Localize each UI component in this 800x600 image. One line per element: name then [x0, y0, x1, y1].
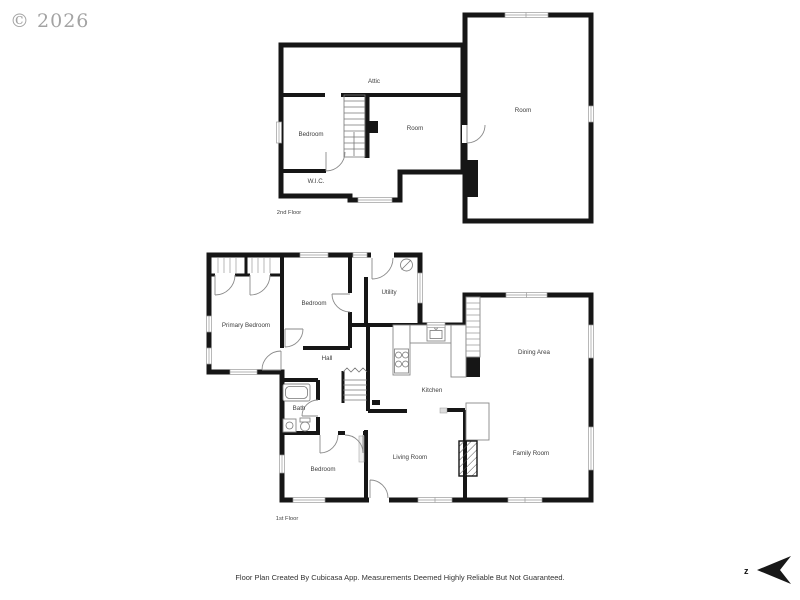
room-label-room-left: Room	[407, 125, 424, 132]
room-label-bedroom-bottom: Bedroom	[310, 466, 335, 473]
floor-label-1st: 1st Floor	[276, 516, 299, 522]
watermark: © 2026	[10, 10, 89, 32]
room-label-kitchen: Kitchen	[422, 387, 443, 394]
room-label-attic: Attic	[368, 78, 380, 85]
pantry-shelves	[466, 297, 480, 357]
half-wall	[440, 408, 447, 413]
north-arrow-icon: z	[744, 556, 791, 584]
chimney	[366, 121, 378, 133]
first-floor-windows	[207, 253, 594, 503]
bathtub-icon	[283, 384, 310, 401]
second-floor-plan: Attic Bedroom Room W.I.C. Room 2nd Floor	[277, 13, 594, 222]
chimney	[465, 357, 480, 377]
disclaimer-text: Floor Plan Created By Cubicasa App. Meas…	[235, 573, 564, 582]
second-floor-exterior-walls	[281, 15, 591, 221]
room-label-bath: Bath	[293, 405, 306, 412]
staircase-down	[343, 368, 367, 400]
staircase-up	[344, 95, 365, 157]
floor-label-2nd: 2nd Floor	[277, 210, 302, 216]
room-label-utility: Utility	[381, 289, 397, 296]
room-label-dining-area: Dining Area	[518, 349, 551, 356]
room-label-wic: W.I.C.	[308, 178, 325, 185]
room-label-primary-bedroom: Primary Bedroom	[222, 322, 270, 329]
toilet-icon	[300, 418, 310, 431]
floor-plan-canvas: © 2026	[0, 0, 800, 600]
room-label-bedroom-top: Bedroom	[301, 300, 326, 307]
room-label-hall: Hall	[322, 355, 333, 362]
bathroom-sink-icon	[283, 419, 296, 432]
room-label-living-room: Living Room	[393, 454, 427, 461]
room-label-bedroom-2f: Bedroom	[298, 131, 323, 138]
chimney	[464, 160, 478, 197]
water-heater-icon	[401, 259, 413, 271]
kitchen-sink-icon	[427, 326, 445, 341]
first-floor-exterior-walls	[209, 255, 591, 500]
closet-shelves	[218, 258, 270, 273]
floor-plan-page: © 2026	[0, 0, 800, 600]
stove-icon	[395, 349, 409, 373]
north-arrow-label: z	[744, 566, 749, 576]
room-label-family-room: Family Room	[513, 450, 549, 457]
first-floor-plan: Primary Bedroom Bedroom Utility Hall Bat…	[207, 252, 594, 522]
room-label-room-right: Room	[515, 107, 532, 114]
